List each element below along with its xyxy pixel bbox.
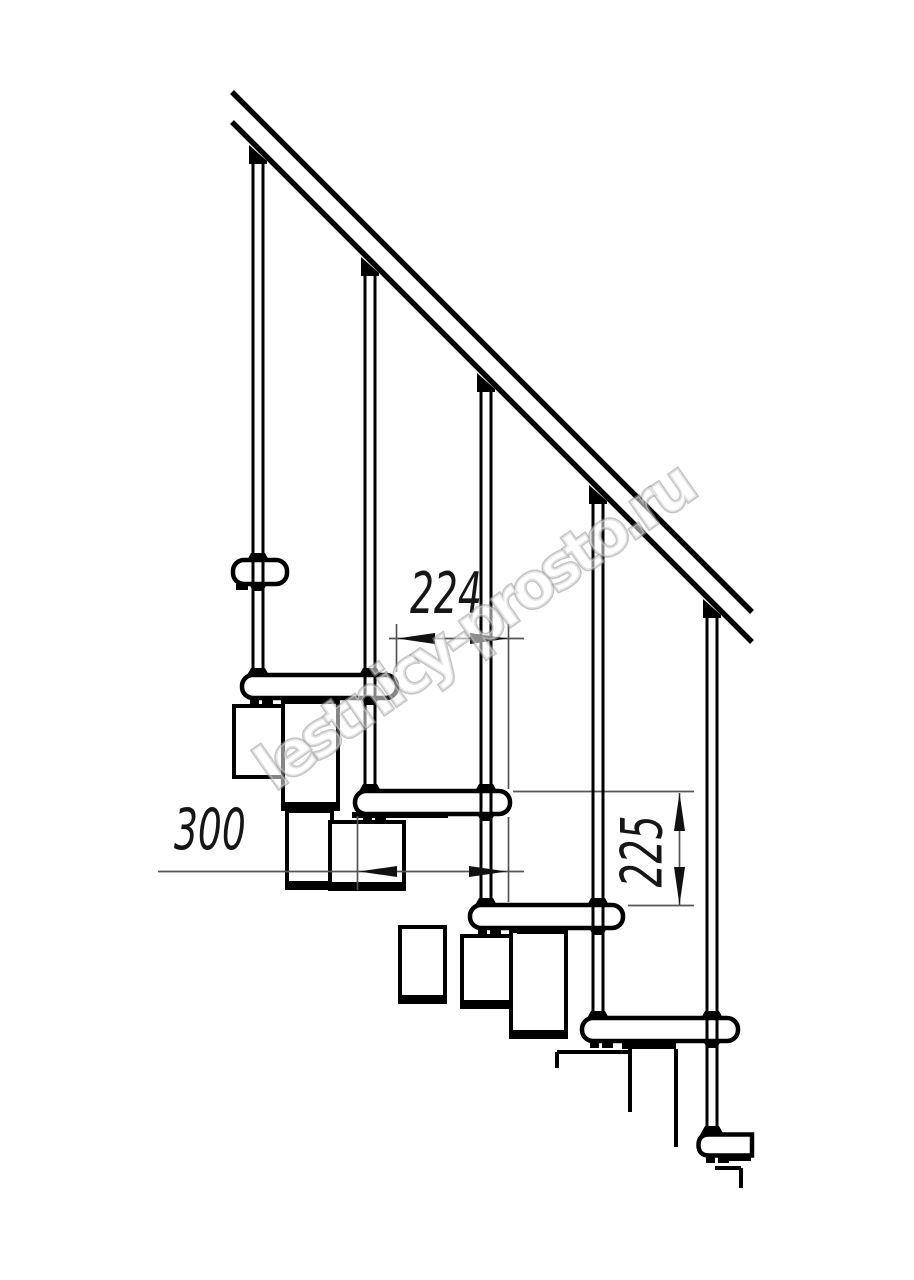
- tread-4: [582, 1018, 738, 1041]
- module-box: [462, 936, 511, 1007]
- module-box: [400, 927, 445, 1002]
- tread-top-partial: [233, 560, 287, 584]
- module-box: [511, 931, 566, 1037]
- module-base-plate: [288, 881, 331, 888]
- dimension-label-step-rise: 225: [615, 815, 672, 888]
- module-base-plate: [401, 995, 444, 1002]
- tread-3: [470, 905, 623, 928]
- page: 224 300 225 lestnicy-prosto.ru: [0, 0, 914, 1280]
- module-base-plate: [512, 1030, 565, 1037]
- module-base-plate: [463, 1000, 510, 1007]
- module-base-plate: [331, 882, 403, 889]
- dimension-label-step-rise-wrap: 225: [588, 823, 698, 880]
- tread-5-partial: [699, 1135, 753, 1156]
- module-base-plate: [284, 802, 337, 809]
- module-box: [330, 822, 404, 889]
- tread-2: [355, 791, 510, 814]
- dimension-label-tread-depth: 300: [174, 802, 246, 859]
- module-box: [287, 811, 332, 888]
